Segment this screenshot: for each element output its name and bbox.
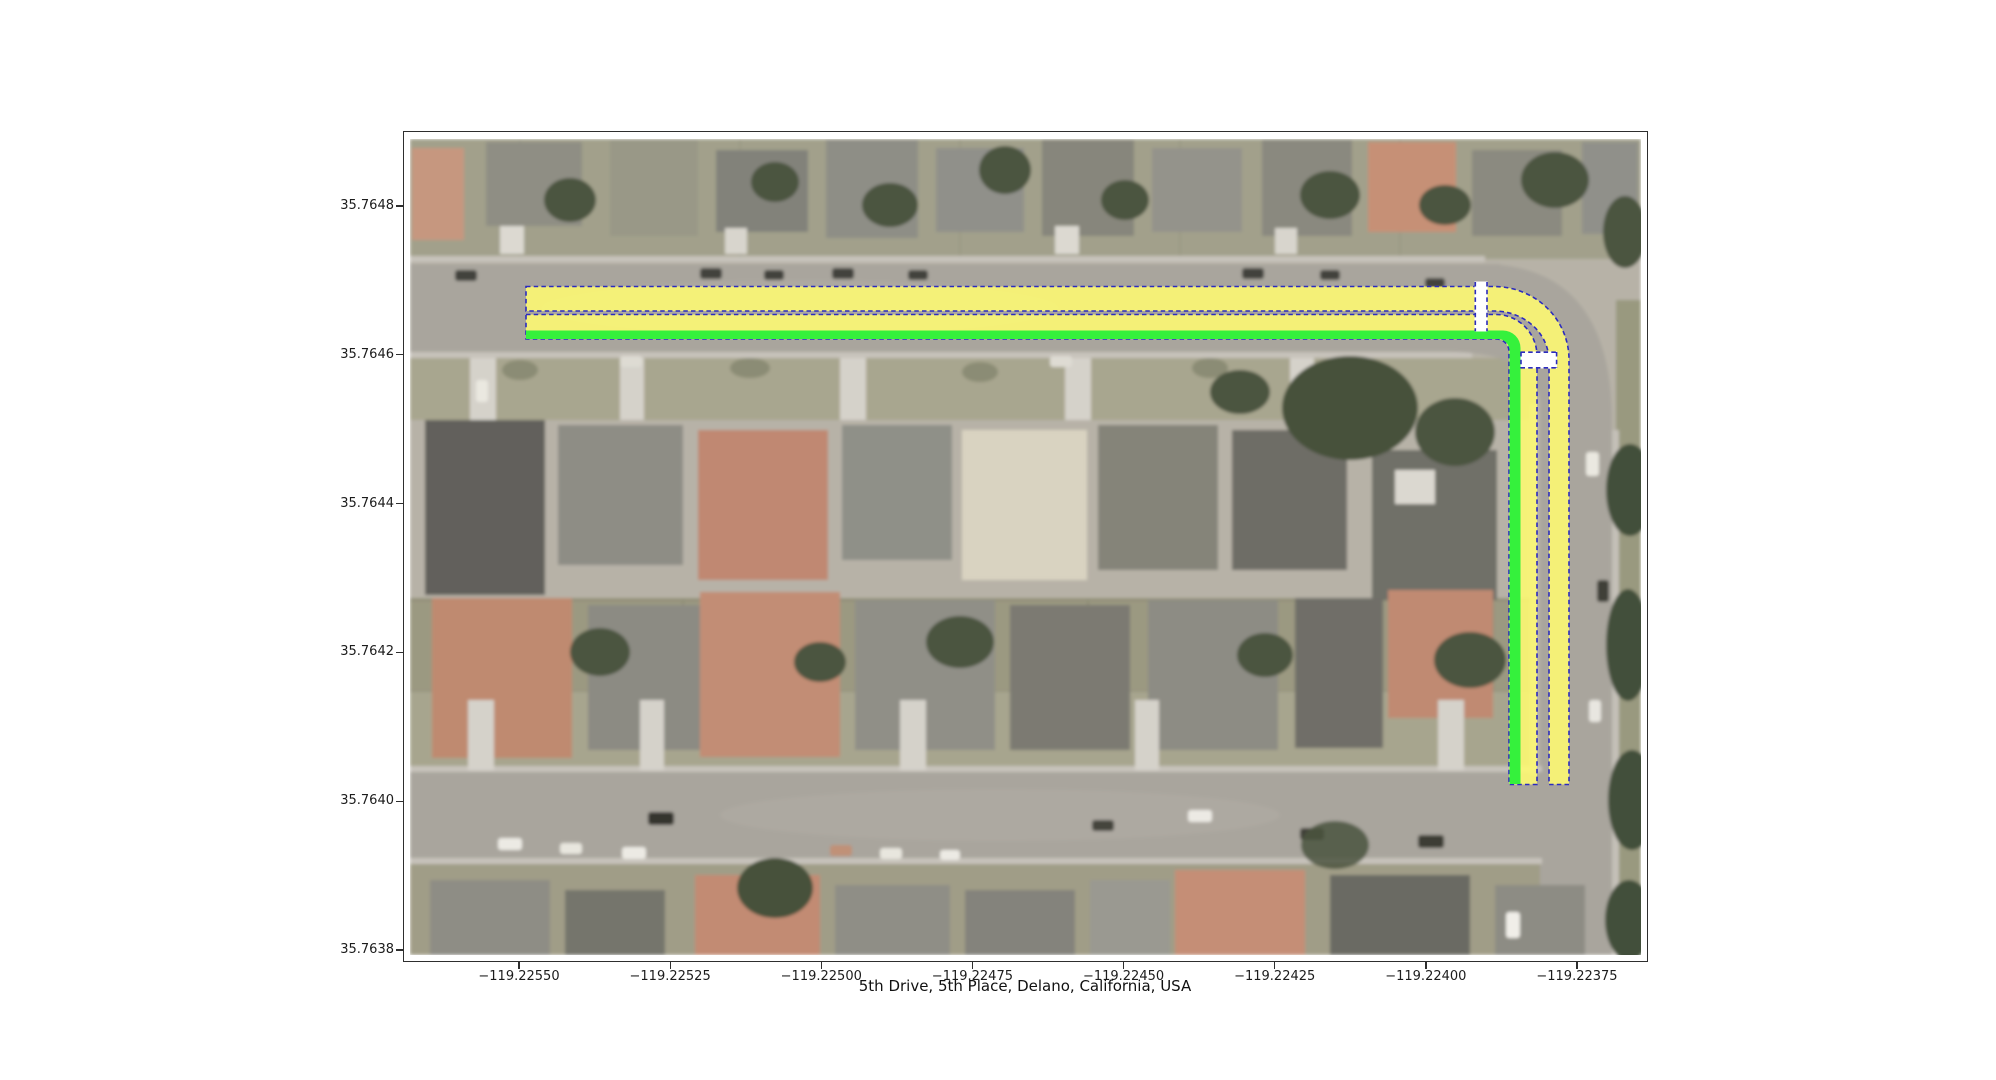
x-tick: [821, 962, 822, 969]
satellite-photo: [410, 139, 1641, 955]
y-tick: [396, 205, 403, 206]
x-tick: [1123, 962, 1124, 969]
y-tick: [396, 503, 403, 504]
x-axis-label: 5th Drive, 5th Place, Delano, California…: [859, 977, 1192, 995]
x-tick-label: −119.22550: [478, 969, 559, 985]
y-tick: [396, 354, 403, 355]
x-tick: [670, 962, 671, 969]
x-tick: [972, 962, 973, 969]
x-tick: [518, 962, 519, 969]
y-tick-label: 35.7642: [340, 644, 394, 660]
y-tick: [396, 652, 403, 653]
figure-canvas: 35.764835.764635.764435.764235.764035.76…: [0, 0, 1996, 1080]
x-tick: [1425, 962, 1426, 969]
x-tick-label: −119.22525: [630, 969, 711, 985]
x-tick-label: −119.22375: [1536, 969, 1617, 985]
y-tick-label: 35.7640: [340, 793, 394, 809]
x-tick-label: −119.22500: [781, 969, 862, 985]
y-tick: [396, 801, 403, 802]
y-tick-label: 35.7648: [340, 198, 394, 214]
x-tick: [1576, 962, 1577, 969]
y-tick-label: 35.7638: [340, 942, 394, 958]
intersection-break-horizontal-band: [1475, 282, 1488, 332]
y-tick: [396, 949, 403, 950]
x-tick-label: −119.22400: [1385, 969, 1466, 985]
y-tick-label: 35.7644: [340, 496, 394, 512]
intersection-break-vertical-band: [1521, 352, 1558, 369]
y-tick-label: 35.7646: [340, 347, 394, 363]
x-tick-label: −119.22425: [1234, 969, 1315, 985]
x-tick: [1274, 962, 1275, 969]
map-plot-area: [410, 139, 1641, 955]
